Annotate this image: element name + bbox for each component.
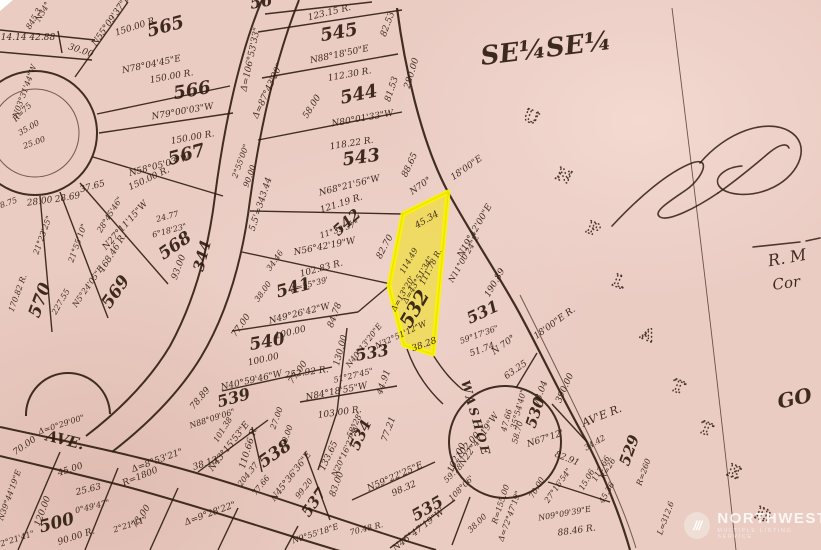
survey-text-label: 2°21'41" [0, 529, 35, 549]
unplatted-letter: T [696, 418, 716, 441]
survey-text-label: N56°42'19"W [292, 236, 357, 258]
survey-text-label: 28.75 [0, 196, 18, 213]
survey-text-label: 38.00 [466, 512, 489, 535]
section-line [672, 8, 736, 550]
survey-text-label: 82.91 [553, 450, 581, 469]
survey-text-label: N67°12' [525, 429, 565, 450]
watermark-brand: NORTHWEST [717, 511, 821, 528]
survey-text-label: 82.53 [379, 10, 397, 38]
survey-text-label: 58.00 [301, 93, 323, 120]
survey-text-label: N88°18'50"E [308, 44, 370, 67]
survey-text-label: 78.89 [188, 385, 212, 411]
unplatted-letter: L [610, 271, 629, 294]
unplatted-letter: E [724, 461, 744, 484]
survey-text-label: 70.00 [527, 476, 546, 500]
unplatted-letter: N [553, 164, 575, 188]
survey-text-label: 170.82 R. [7, 273, 29, 313]
survey-text-label: L=312.6 [655, 500, 676, 537]
survey-text-label: 37.65 [79, 179, 107, 195]
lot-number-label: SE¼SE¼ [479, 26, 613, 72]
lot-number-label: 570 [25, 280, 56, 320]
survey-text-label: R=260 [634, 457, 652, 487]
survey-text-label: 44.91 [375, 368, 394, 397]
survey-text-label: 0°49'47" [74, 498, 110, 515]
survey-text-label: 18'00"E R. [532, 305, 577, 342]
survey-text-label: 28.69 [53, 191, 81, 206]
survey-text-label: 38.00 [253, 280, 274, 304]
survey-text-label: N39°44'19"E [0, 468, 23, 522]
survey-text-label: 90.00 [242, 164, 258, 189]
survey-text-label: N80°01'33"W [330, 109, 395, 130]
survey-text-label: 50.00 [279, 424, 295, 449]
survey-text-label: N49°26'42"W [267, 301, 332, 326]
survey-text-label: 25.63 [74, 482, 103, 498]
survey-text-label: 28.00 [25, 195, 53, 209]
unplatted-letter: T [668, 376, 688, 399]
survey-text-label: 81.53 [383, 75, 401, 103]
lot-number-label: 529 [615, 432, 643, 468]
survey-text-label: 88.46 R. [557, 523, 596, 538]
survey-text-label: N40°59'46"W [219, 369, 284, 393]
survey-text-label: 2°21'41" [111, 515, 148, 535]
survey-text-label: Δ=87°43'20" [251, 62, 286, 121]
unplatted-letter: U [520, 105, 541, 129]
watermark-northwest-mls: /// NORTHWEST MULTIPLE LISTING SERVICE [684, 511, 821, 540]
survey-text-label: N 70° [489, 333, 517, 357]
survey-text-label: 21°23'25" [31, 215, 54, 257]
survey-text-label: 252.92 R. [283, 365, 329, 381]
survey-text-label: 77.21 [380, 415, 398, 443]
survey-text-label: 190.89 [483, 267, 508, 300]
mls-logo-icon: /// [684, 512, 710, 539]
survey-text-label: 88.65 [400, 151, 420, 179]
survey-text-label: 27°16'54" [542, 466, 573, 505]
survey-text-label: 25.00 [21, 135, 47, 152]
survey-text-label: Δ=106°53'33" [239, 27, 263, 94]
survey-text-label: 30.00 [67, 42, 95, 60]
survey-text-label: 112.30 R. [327, 66, 372, 84]
lot-number-label: 544 [338, 80, 379, 108]
survey-text-label: N68°21'56"W [317, 173, 382, 198]
survey-text-label: Cor [771, 272, 802, 294]
survey-text-label: 24.77 [154, 209, 180, 224]
survey-text-label: 59°17'36" [459, 324, 500, 346]
survey-text-label: N79°00'03"W [150, 102, 215, 123]
survey-text-label: N9°55'18"E [290, 522, 340, 546]
survey-text-label: 100.00 [274, 324, 307, 341]
lot-number-label: 545 [319, 19, 360, 46]
lot-number-label: 56 [248, 0, 273, 13]
signature-scribble [612, 126, 820, 247]
survey-text-label: 27.00 [268, 406, 285, 432]
survey-text-label: 63.25 [502, 359, 529, 382]
watermark-tagline: MULTIPLE LISTING SERVICE [717, 528, 821, 540]
plat-map-svg: UNPLATTED 565566567568569570565455445435… [0, 0, 821, 550]
survey-text-label: 34.42 [583, 433, 607, 452]
survey-text-label: AV'E R. [579, 402, 623, 430]
survey-text-label: N09°09'39"E [537, 504, 592, 522]
survey-text-label: 18'00"E [449, 154, 485, 183]
survey-text-label: 45.00 [56, 461, 85, 479]
survey-text-label: N19°42'00"E [455, 202, 494, 260]
survey-text-label: 70.48 R. [349, 520, 384, 537]
survey-text-label: 70.00 [11, 435, 38, 458]
logo-slashes: /// [693, 518, 701, 533]
lot-number-label: GO [775, 383, 814, 414]
survey-text-label: 14.14 42.88 [1, 33, 56, 43]
survey-text-label: N70° [407, 175, 433, 197]
scan-corner [0, 0, 13, 11]
survey-text-label: 35.00 [17, 118, 41, 137]
plat-map: UNPLATTED 565566567568569570565455445435… [0, 0, 821, 550]
survey-text-label: R. M [765, 245, 808, 271]
unplatted-letter: A [637, 323, 658, 347]
unplatted-letter: P [583, 218, 603, 241]
survey-text-label: 51°27'45" [333, 366, 374, 385]
